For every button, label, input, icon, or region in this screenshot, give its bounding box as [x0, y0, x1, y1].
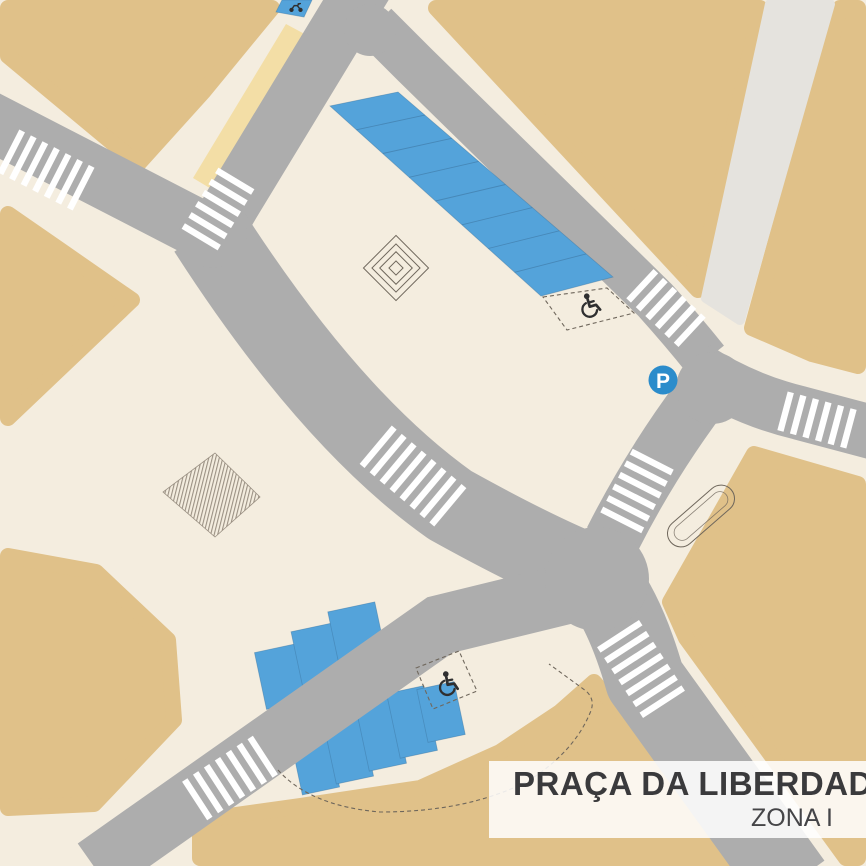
- junction-north: [344, 4, 396, 56]
- parking-sign: P: [649, 366, 678, 395]
- legend-title: PRAÇA DA LIBERDADE: [489, 764, 866, 804]
- map-canvas: P: [0, 0, 866, 866]
- junction-east: [676, 352, 748, 424]
- map-legend: PRAÇA DA LIBERDADE ZONA I: [489, 761, 866, 838]
- legend-zone: ZONA I: [489, 804, 866, 832]
- junction-central: [545, 527, 649, 631]
- parking-zone-map: P PRAÇA DA LIBERDADE ZONA I: [0, 0, 866, 866]
- parking-sign-label: P: [656, 370, 670, 393]
